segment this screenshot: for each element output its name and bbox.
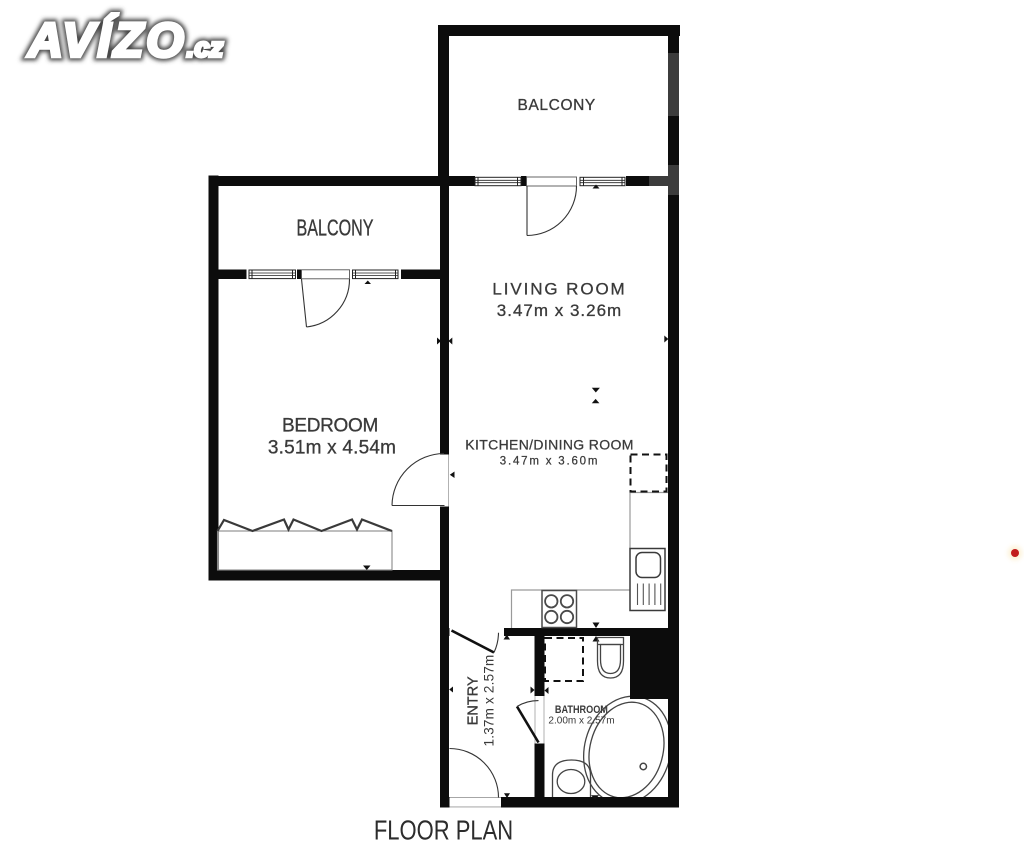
svg-text:BALCONY: BALCONY: [518, 97, 596, 114]
svg-text:BEDROOM: BEDROOM: [282, 416, 378, 437]
svg-text:BALCONY: BALCONY: [297, 216, 374, 241]
svg-text:3.51m x 4.54m: 3.51m x 4.54m: [268, 437, 396, 458]
svg-text:3.47m x 3.26m: 3.47m x 3.26m: [497, 301, 622, 320]
svg-text:2.00m x 2.57m: 2.00m x 2.57m: [548, 715, 614, 726]
svg-text:1.37m x 2.57m: 1.37m x 2.57m: [482, 655, 497, 747]
svg-text:ENTRY: ENTRY: [466, 676, 482, 725]
svg-text:LIVING ROOM: LIVING ROOM: [492, 279, 626, 298]
svg-text:KITCHEN/DINING ROOM: KITCHEN/DINING ROOM: [465, 436, 633, 452]
svg-text:FLOOR PLAN: FLOOR PLAN: [374, 815, 513, 842]
svg-text:3.47m x 3.60m: 3.47m x 3.60m: [500, 455, 599, 467]
